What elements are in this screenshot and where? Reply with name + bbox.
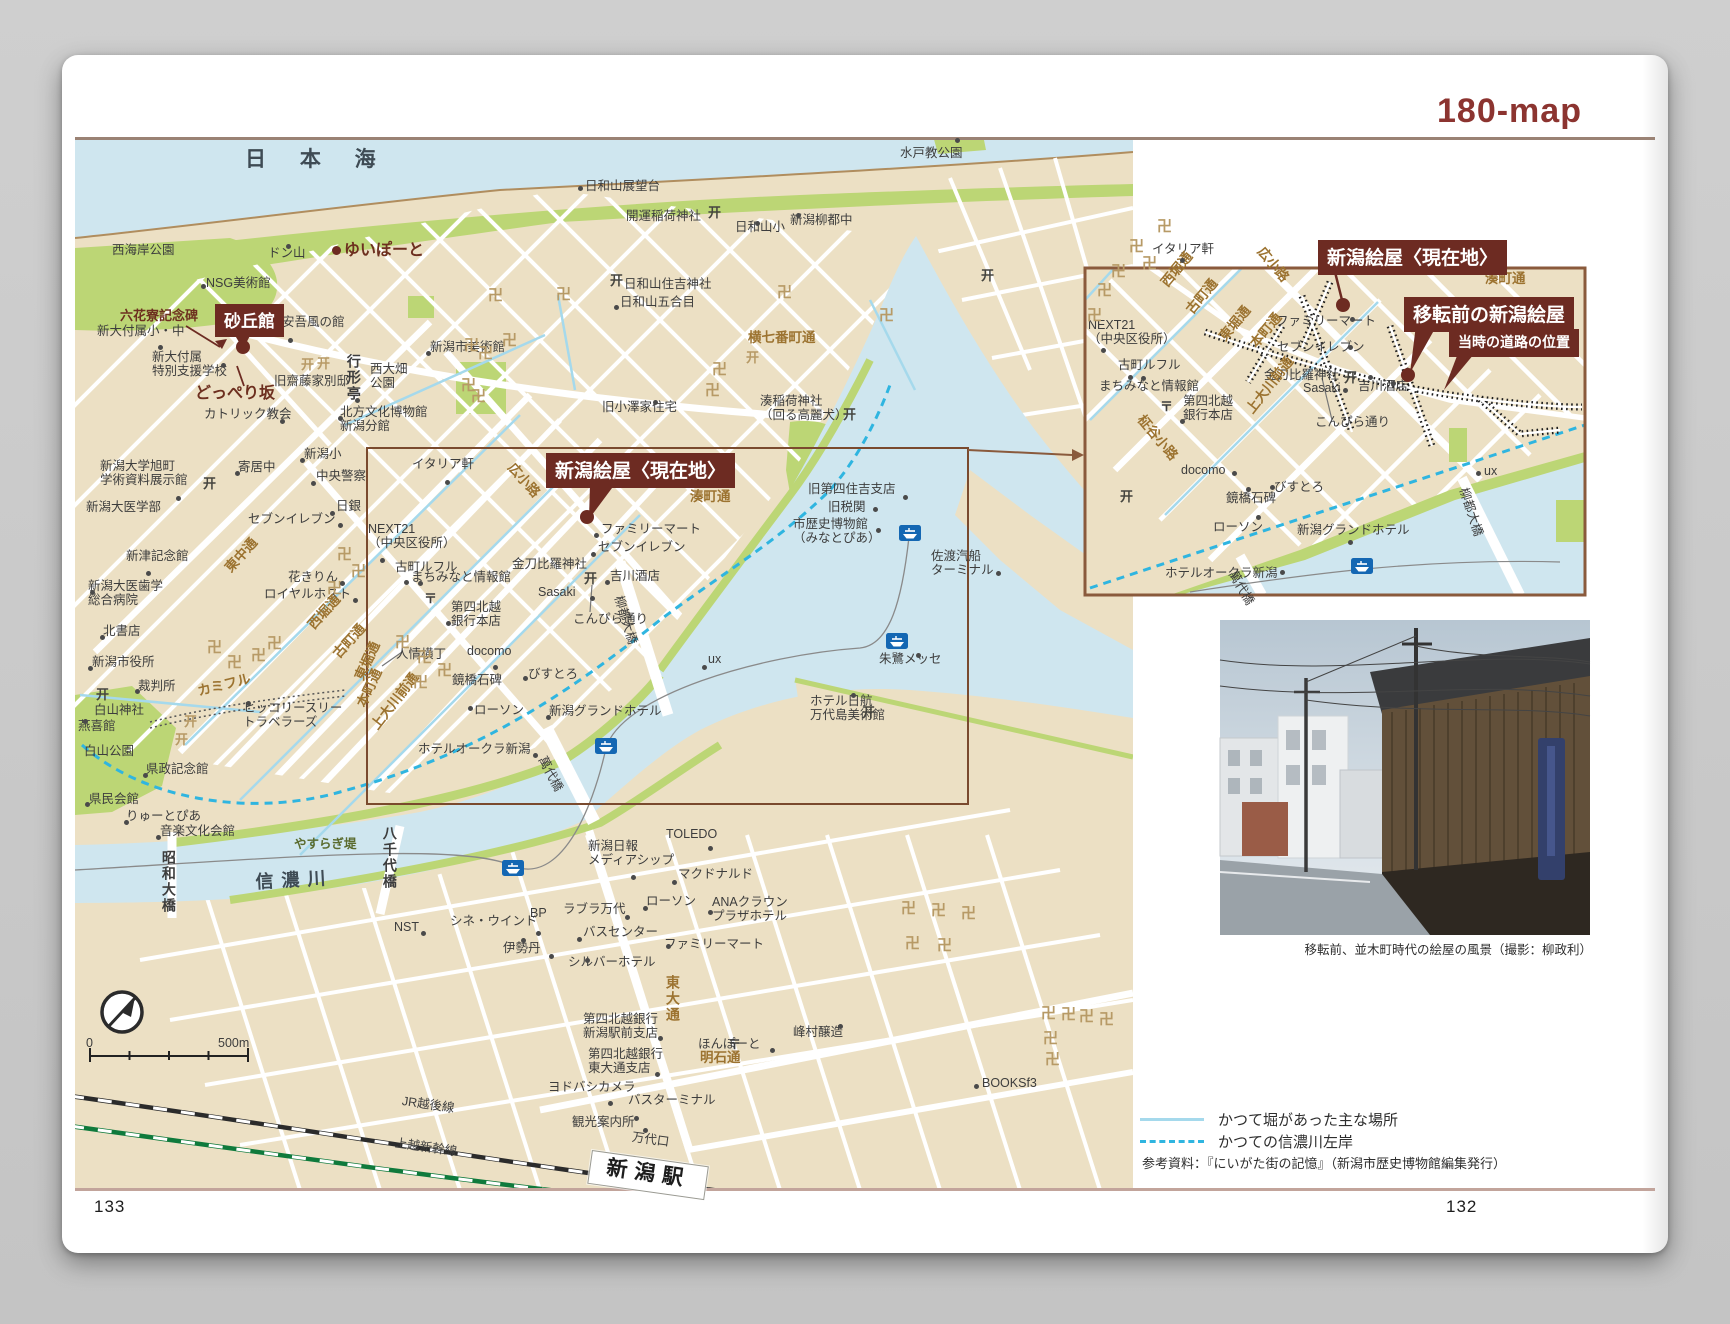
scale-start-label: 0 [86, 1036, 93, 1050]
legend-label: かつての信濃川左岸 [1218, 1131, 1353, 1152]
header-rule [75, 137, 1655, 140]
footer-rule [75, 1188, 1655, 1191]
book-scan-background: 180-map 133 132 移転前、並木町時代の絵屋の風景（撮影：柳政利） … [0, 0, 1730, 1324]
page [62, 55, 1668, 1253]
legend-row-riverbank: かつての信濃川左岸 [1140, 1130, 1398, 1152]
scale-end-label: 500m [218, 1036, 249, 1050]
legend-row-moat: かつて堀があった主な場所 [1140, 1108, 1398, 1130]
legend: かつて堀があった主な場所 かつての信濃川左岸 [1140, 1108, 1398, 1152]
photo-caption: 移転前、並木町時代の絵屋の風景（撮影：柳政利） [1240, 939, 1592, 958]
legend-label: かつて堀があった主な場所 [1218, 1109, 1398, 1130]
page-number-left: 133 [94, 1197, 125, 1217]
legend-reference: 参考資料：『にいがた街の記憶』（新潟市歴史博物館編集発行） [1142, 1153, 1506, 1172]
page-title: 180-map [1437, 92, 1582, 131]
moat-line-swatch [1140, 1118, 1204, 1121]
page-number-right: 132 [1446, 1197, 1477, 1217]
riverbank-line-swatch [1140, 1140, 1204, 1143]
